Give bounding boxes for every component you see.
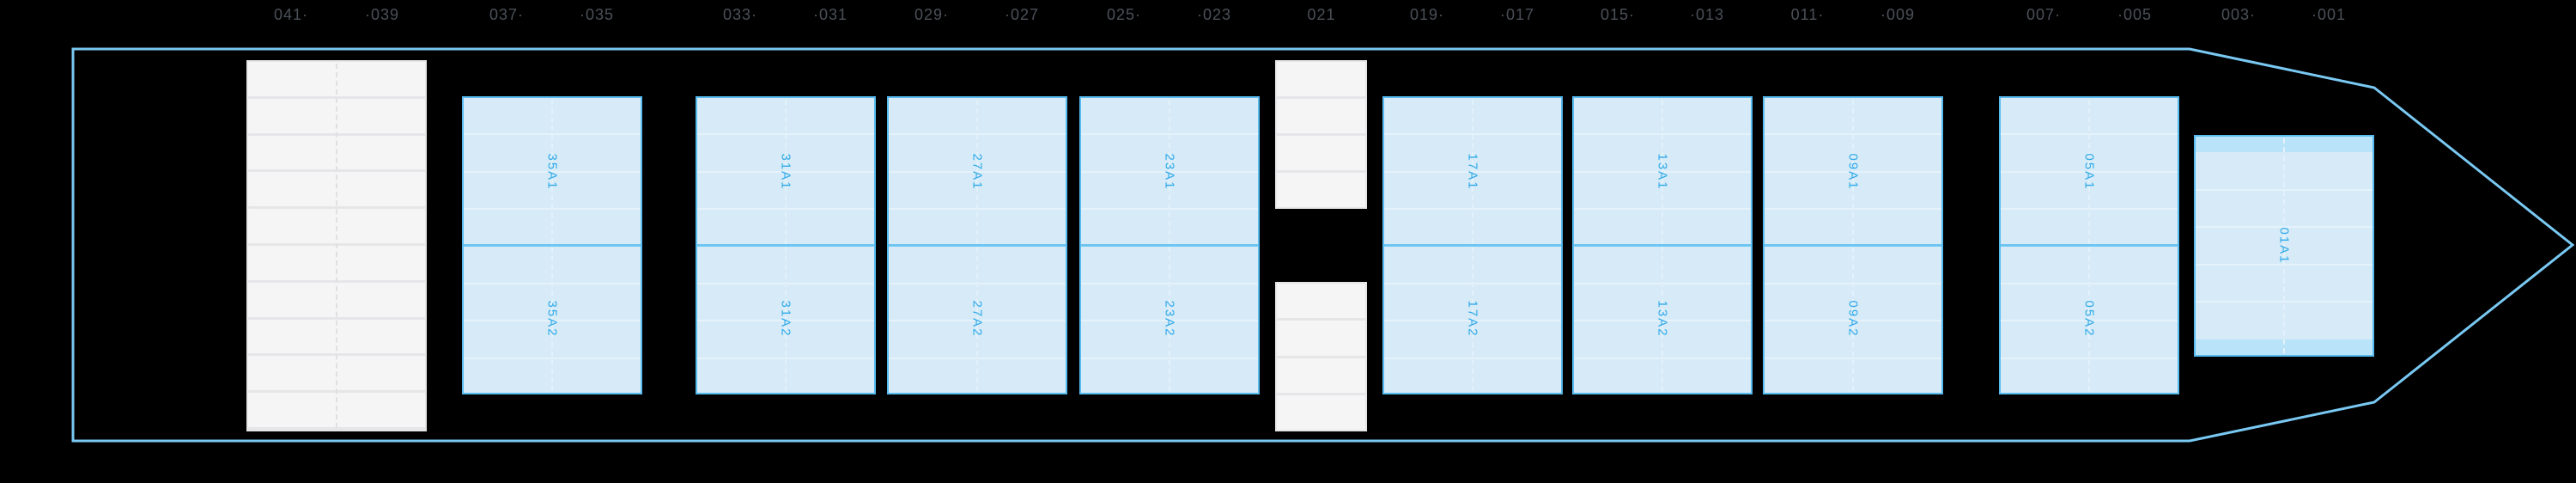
ruler-label-003: 003· bbox=[2221, 6, 2256, 23]
bay-23: 23A123A2 bbox=[1079, 96, 1260, 394]
bay-label-09a2: 09A2 bbox=[1847, 300, 1860, 337]
bay-label-13a2: 13A2 bbox=[1656, 300, 1669, 337]
bay-label-05a2: 05A2 bbox=[2083, 300, 2096, 337]
mid-block-upper bbox=[1275, 60, 1367, 209]
bay-05: 05A105A2 bbox=[1999, 96, 2179, 394]
bay-label-17a2: 17A2 bbox=[1467, 300, 1479, 337]
bay-label-17a1: 17A1 bbox=[1467, 153, 1479, 190]
ruler-label-009: ·009 bbox=[1880, 6, 1915, 23]
bay-label-31a1: 31A1 bbox=[780, 153, 793, 190]
ruler-label-035: ·035 bbox=[580, 6, 614, 23]
ruler-label-011: 011· bbox=[1791, 6, 1825, 23]
grid-center-dashed-line bbox=[336, 64, 337, 428]
ruler-label-005: ·005 bbox=[2117, 6, 2152, 23]
bay-17: 17A117A2 bbox=[1382, 96, 1563, 394]
bay-label-09a1: 09A1 bbox=[1847, 153, 1860, 190]
bay-13: 13A113A2 bbox=[1572, 96, 1753, 394]
ruler-label-037: 037· bbox=[489, 6, 524, 23]
bay-label-01a1: 01A1 bbox=[2278, 227, 2291, 264]
bay-01: 01A1 bbox=[2194, 135, 2374, 357]
bay-label-23a2: 23A2 bbox=[1163, 300, 1176, 337]
grid-row bbox=[1277, 395, 1365, 430]
bay-31: 31A131A2 bbox=[696, 96, 876, 394]
ruler-label-041: 041· bbox=[274, 6, 308, 23]
mid-block-lower bbox=[1275, 282, 1367, 431]
bay-label-13a1: 13A1 bbox=[1656, 153, 1669, 190]
bay-label-27a1: 27A1 bbox=[971, 153, 984, 190]
ruler-label-019: 019· bbox=[1410, 6, 1444, 23]
ruler-label-015: 015· bbox=[1601, 6, 1635, 23]
grid-row bbox=[1277, 136, 1365, 173]
position-ruler: 041··039037··035033··031029··027025··023… bbox=[0, 0, 2576, 26]
ruler-label-031: ·031 bbox=[813, 6, 848, 23]
bay-09: 09A109A2 bbox=[1763, 96, 1943, 394]
grid-row bbox=[1277, 358, 1365, 395]
ruler-label-025: 025· bbox=[1107, 6, 1141, 23]
grid-row bbox=[1277, 99, 1365, 136]
bay-27: 27A127A2 bbox=[887, 96, 1067, 394]
ruler-label-001: ·001 bbox=[2312, 6, 2346, 23]
bay-label-27a2: 27A2 bbox=[971, 300, 984, 337]
grid-row bbox=[1277, 321, 1365, 358]
bay-label-31a2: 31A2 bbox=[780, 300, 793, 337]
ruler-label-027: ·027 bbox=[1005, 6, 1039, 23]
ruler-label-013: ·013 bbox=[1690, 6, 1724, 23]
bay-label-05a1: 05A1 bbox=[2083, 153, 2096, 190]
bay-label-35a2: 35A2 bbox=[546, 300, 559, 337]
grid-row bbox=[1277, 173, 1365, 207]
ruler-label-023: ·023 bbox=[1197, 6, 1231, 23]
bay-35: 35A135A2 bbox=[462, 96, 642, 394]
bay-label-35a1: 35A1 bbox=[546, 153, 559, 190]
ruler-label-021: 021 bbox=[1307, 6, 1335, 23]
ruler-label-029: 029· bbox=[914, 6, 949, 23]
grid-row bbox=[1277, 62, 1365, 99]
ruler-label-039: ·039 bbox=[365, 6, 399, 23]
bay-label-23a1: 23A1 bbox=[1163, 153, 1176, 190]
grid-row bbox=[1277, 284, 1365, 321]
ruler-label-017: ·017 bbox=[1500, 6, 1534, 23]
vessel-bay-plan: 041··039037··035033··031029··027025··023… bbox=[0, 0, 2576, 483]
ruler-label-033: 033· bbox=[723, 6, 757, 23]
stern-grid bbox=[246, 60, 427, 431]
ruler-label-007: 007· bbox=[2026, 6, 2061, 23]
